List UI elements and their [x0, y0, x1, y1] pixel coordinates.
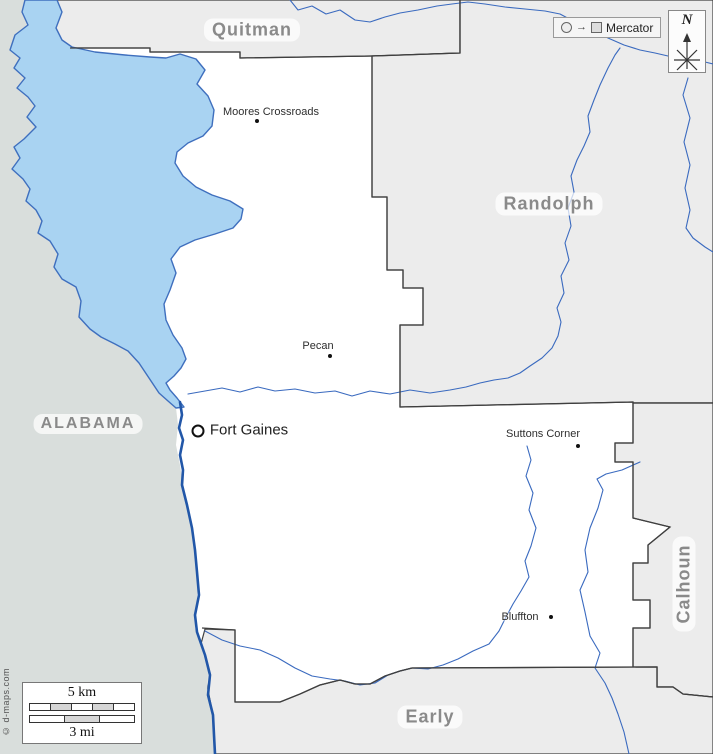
scale-km-label: 5 km	[68, 686, 96, 700]
dmaps-watermark: © d-maps.com	[1, 668, 11, 736]
marker-pecan	[328, 354, 332, 358]
scale-seg	[114, 704, 134, 710]
marker-suttons-corner	[576, 444, 580, 448]
label-county-quitman: Quitman	[204, 19, 300, 42]
label-county-randolph: Randolph	[496, 193, 603, 216]
scale-seg	[93, 704, 114, 710]
compass-north-letter: N	[682, 11, 693, 29]
label-town-fort-gaines: Fort Gaines	[210, 422, 288, 439]
globe-circle-icon	[561, 22, 572, 33]
flat-map-square-icon	[591, 22, 602, 33]
label-town-moores-crossroads: Moores Crossroads	[223, 106, 319, 118]
scale-bar-km	[29, 703, 135, 711]
arrow-right-icon: →	[576, 22, 587, 33]
projection-badge: → Mercator	[553, 17, 661, 38]
marker-fort-gaines	[192, 425, 205, 438]
label-town-bluffton: Bluffton	[501, 611, 538, 623]
north-arrow-icon	[670, 29, 704, 71]
projection-name: Mercator	[606, 21, 653, 35]
label-county-calhoun: Calhoun	[673, 537, 696, 632]
scale-seg	[65, 716, 100, 722]
scale-seg	[72, 704, 93, 710]
label-town-suttons-corner: Suttons Corner	[506, 428, 580, 440]
base-map	[0, 0, 713, 754]
scale-bar-box: 5 km 3 mi	[22, 682, 142, 744]
scale-seg	[30, 716, 65, 722]
label-town-pecan: Pecan	[302, 340, 333, 352]
map-canvas: Quitman Randolph Calhoun Early ALABAMA M…	[0, 0, 713, 754]
label-county-early: Early	[397, 706, 462, 729]
scale-seg	[51, 704, 72, 710]
scale-bar-mi	[29, 715, 135, 723]
label-state-alabama: ALABAMA	[34, 414, 143, 434]
compass-rose: N	[668, 10, 706, 73]
scale-mi-label: 3 mi	[69, 726, 94, 740]
scale-seg	[30, 704, 51, 710]
scale-seg	[100, 716, 134, 722]
marker-moores-crossroads	[255, 119, 259, 123]
marker-bluffton	[549, 615, 553, 619]
